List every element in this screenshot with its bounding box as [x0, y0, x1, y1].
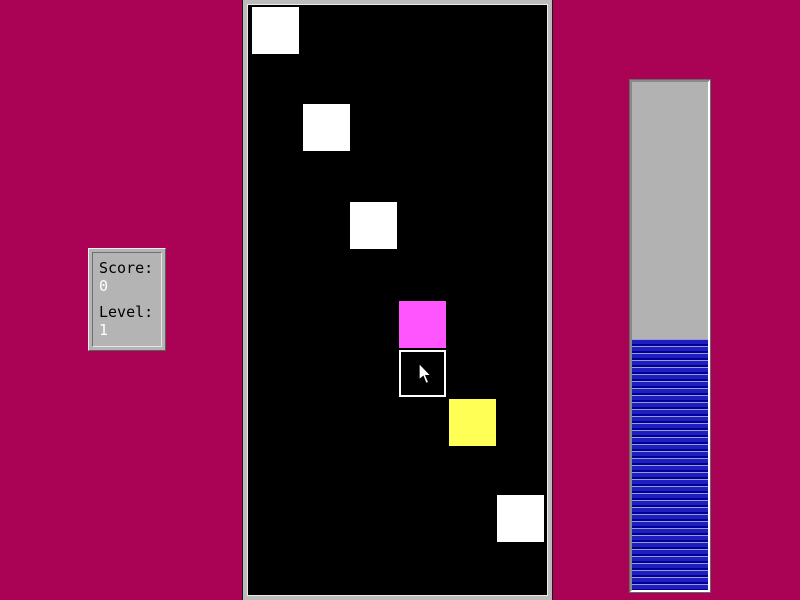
score-label: Score:: [99, 259, 155, 277]
level-value: 1: [99, 321, 155, 339]
level-progress-fill: [632, 339, 708, 590]
level-label: Level:: [99, 303, 155, 321]
level-progress-bar: [630, 80, 710, 592]
score-value: 0: [99, 277, 155, 295]
game-tile[interactable]: [303, 104, 350, 151]
playfield[interactable]: [243, 0, 552, 600]
game-tile[interactable]: [449, 399, 496, 446]
game-tile[interactable]: [350, 202, 397, 249]
game-tile[interactable]: [252, 7, 299, 54]
game-tile[interactable]: [399, 301, 446, 348]
score-panel-inner: Score: 0 Level: 1: [92, 252, 162, 347]
cursor-pointer-icon: [417, 362, 433, 386]
playfield-surface[interactable]: [248, 5, 547, 595]
game-tile[interactable]: [497, 495, 544, 542]
score-panel: Score: 0 Level: 1: [88, 248, 166, 351]
